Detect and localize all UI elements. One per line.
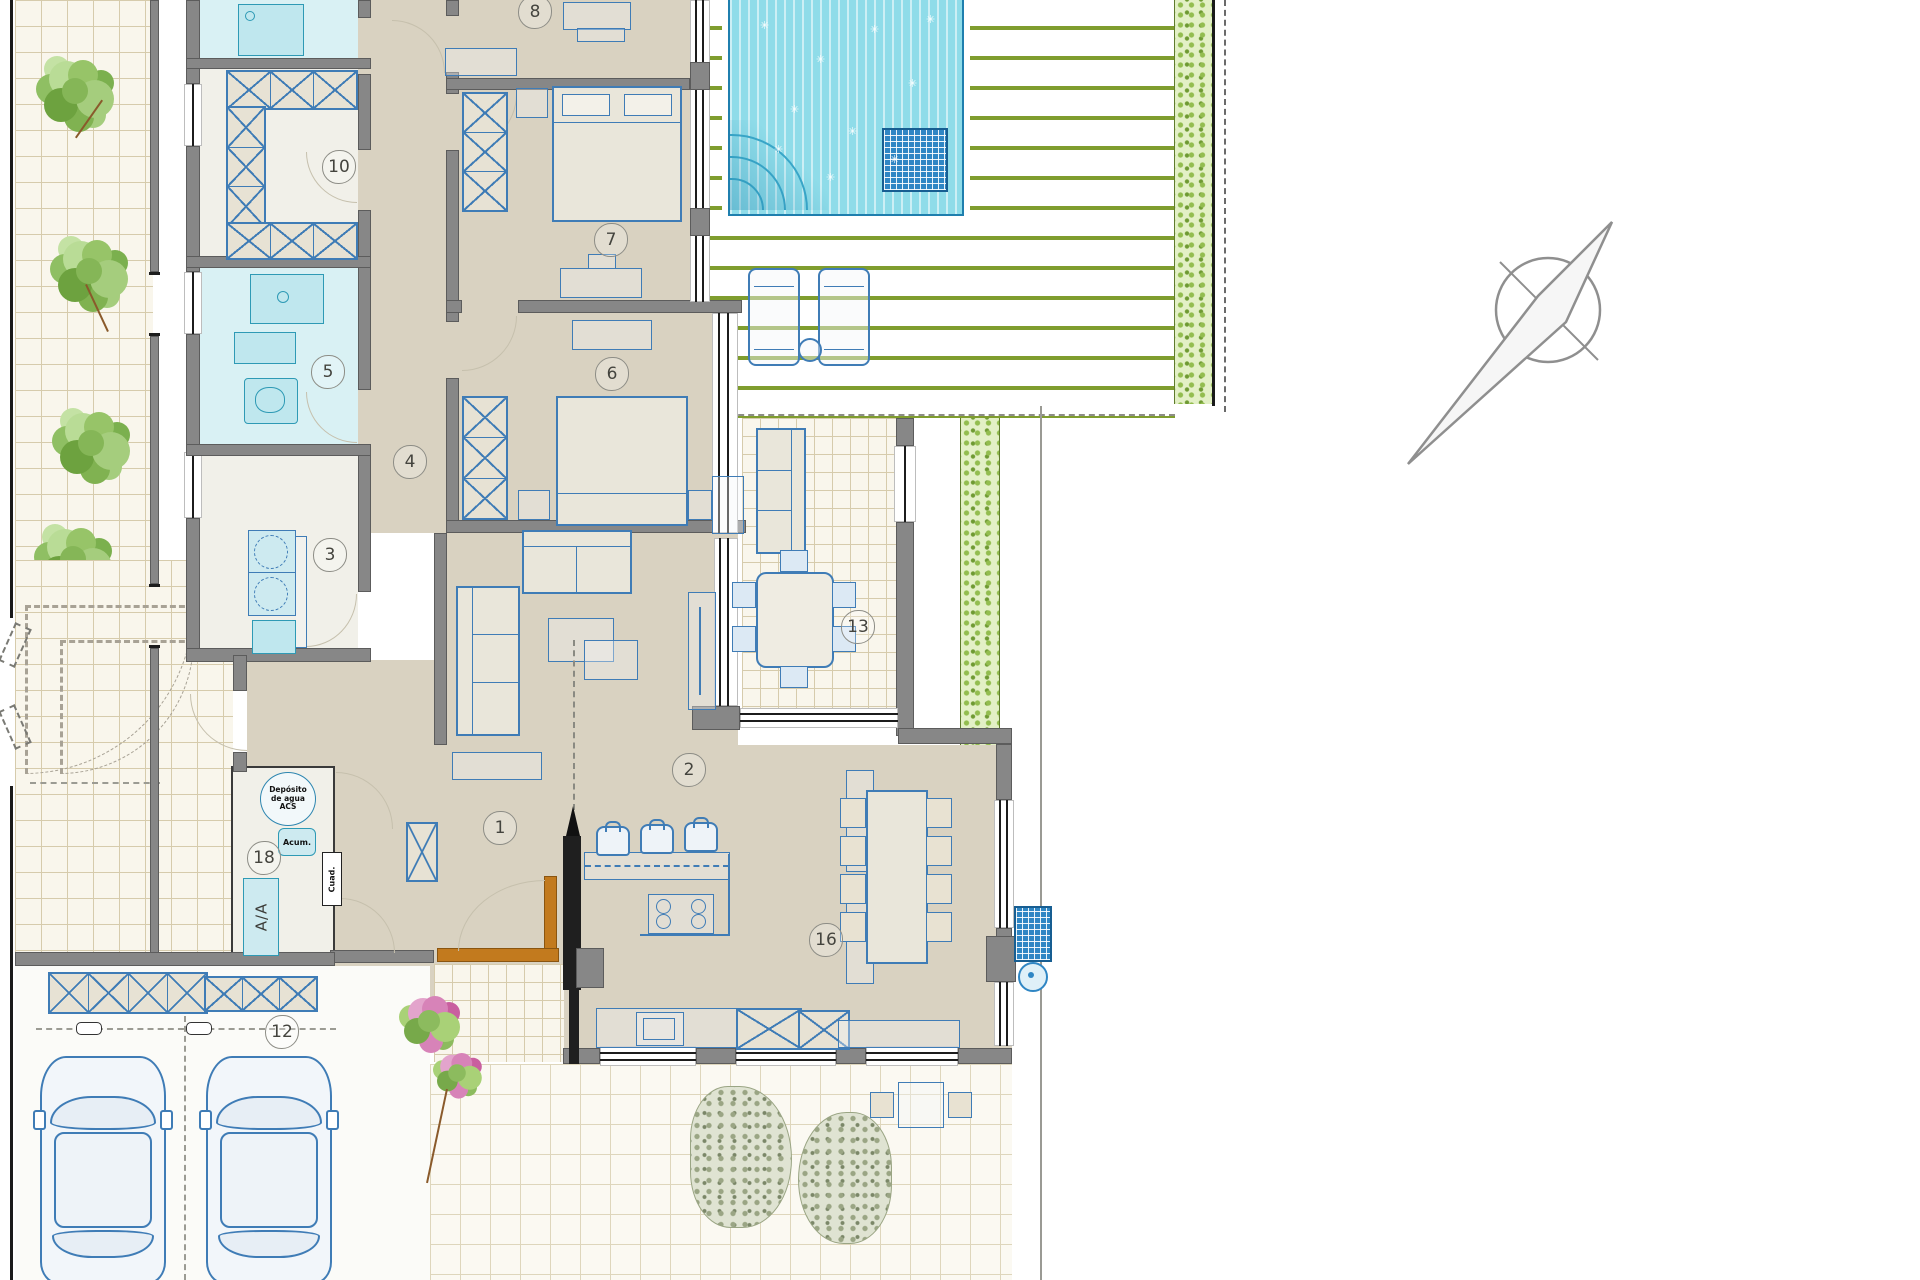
water-sparkle-icon <box>926 14 935 25</box>
water-sparkle-icon <box>890 154 899 165</box>
electrical-panel-label: Cuad. <box>328 866 337 892</box>
wall <box>446 378 459 533</box>
pebble-patch <box>798 1112 892 1244</box>
boundary-line <box>10 786 13 1280</box>
wall <box>446 300 462 313</box>
dining-chair <box>840 836 866 866</box>
hedge-strip <box>1174 0 1214 404</box>
parking-bay-divider <box>184 1016 186 1280</box>
boundary-line <box>1040 406 1042 1280</box>
sideboard <box>838 1020 960 1048</box>
shower-tray <box>238 4 304 56</box>
console-shelf <box>452 752 542 780</box>
pillar <box>576 948 604 988</box>
wardrobe <box>226 106 266 228</box>
wall <box>186 146 200 272</box>
outdoor-chair <box>732 582 756 608</box>
bay-marker <box>76 1022 102 1035</box>
ac-unit: A/A <box>243 878 279 956</box>
fence-wall <box>150 0 159 272</box>
window <box>994 982 1014 1046</box>
sofa <box>522 530 632 594</box>
wall <box>186 334 200 452</box>
washing-machine <box>248 530 296 574</box>
dresser <box>445 48 517 76</box>
wardrobe <box>462 92 508 212</box>
shower-tray <box>250 274 324 324</box>
outdoor-dining-table <box>756 572 834 668</box>
sun-lounger <box>748 268 800 366</box>
counter-edge <box>640 934 730 936</box>
wall <box>958 1048 1012 1064</box>
outdoor-chair <box>832 582 856 608</box>
side-table <box>798 338 822 362</box>
toilet <box>244 378 298 424</box>
dining-chair <box>926 874 952 904</box>
north-arrow-icon <box>1380 170 1680 490</box>
wardrobe <box>462 396 508 520</box>
sliding-glass-doors <box>740 708 898 728</box>
water-sparkle-icon <box>774 144 783 155</box>
outdoor-sofa <box>756 428 806 554</box>
outdoor-chair <box>732 626 756 652</box>
pillar <box>986 936 1016 982</box>
wardrobe <box>226 70 358 110</box>
car <box>40 1056 166 1280</box>
room-label-4: 4 <box>393 445 427 479</box>
room-label-1: 1 <box>483 811 517 845</box>
gate-frame <box>149 645 160 648</box>
wall <box>696 1048 736 1064</box>
dining-table <box>866 790 928 964</box>
desk-chair <box>577 28 625 42</box>
flower-bush-icon <box>418 1010 440 1032</box>
water-sparkle-icon <box>826 172 835 183</box>
room-label-2: 2 <box>672 753 706 787</box>
garage-storage <box>48 972 208 1014</box>
window <box>184 272 202 334</box>
counter-edge <box>728 854 730 936</box>
flower-bush-icon <box>448 1064 466 1082</box>
dining-chair <box>840 874 866 904</box>
accumulator-unit: Acum. <box>278 828 316 856</box>
water-sparkle-icon <box>760 20 769 31</box>
wall <box>358 74 371 150</box>
room-label-6: 6 <box>595 357 629 391</box>
gate-frame <box>149 584 160 587</box>
fence-wall <box>150 648 159 954</box>
bistro-chair <box>948 1092 972 1118</box>
wall <box>896 522 914 736</box>
wall <box>996 744 1012 800</box>
outdoor-chair <box>780 666 808 688</box>
wall <box>233 655 247 691</box>
kitchen-cabinet <box>736 1008 802 1050</box>
water-sparkle-icon <box>790 104 799 115</box>
wall <box>896 418 914 446</box>
counter <box>296 536 307 648</box>
room-label-18: 18 <box>247 841 281 875</box>
bed <box>556 396 688 526</box>
wall <box>690 62 710 90</box>
section-line <box>573 640 575 810</box>
sofa <box>456 586 520 736</box>
setback-dashdot-line <box>1224 0 1226 412</box>
gate-frame <box>149 333 160 336</box>
section-arrow-icon <box>566 806 580 836</box>
dining-chair <box>926 798 952 828</box>
bistro-table <box>898 1082 944 1128</box>
room-label-16: 16 <box>809 923 843 957</box>
window <box>184 452 202 518</box>
kitchen-sink <box>636 1012 684 1046</box>
hall-closet <box>406 822 438 882</box>
cooktop <box>648 894 714 934</box>
coffee-table <box>584 640 638 680</box>
wall <box>898 728 1012 744</box>
wall <box>434 533 447 745</box>
window <box>894 446 916 522</box>
garage-storage <box>204 976 318 1012</box>
water-sparkle-icon <box>908 78 917 89</box>
room-label-13: 13 <box>841 610 875 644</box>
wall <box>233 752 247 772</box>
desk <box>563 2 631 30</box>
tree-icon <box>78 430 104 456</box>
bar-stool <box>640 824 674 854</box>
wall <box>446 150 459 322</box>
pool-equipment-box <box>1014 906 1052 962</box>
dryer <box>248 572 296 616</box>
window-wall <box>714 538 738 706</box>
nightstand <box>518 490 550 520</box>
water-sparkle-icon <box>870 24 879 35</box>
room-label-3: 3 <box>313 538 347 572</box>
dining-chair <box>926 912 952 942</box>
window <box>600 1046 696 1066</box>
outdoor-chair <box>780 550 808 572</box>
bay-marker <box>186 1022 212 1035</box>
car <box>206 1056 332 1280</box>
water-sparkle-icon <box>816 54 825 65</box>
pebble-patch <box>690 1086 792 1228</box>
gate-frame <box>149 272 160 275</box>
window <box>866 1046 958 1066</box>
water-tank-label: Depósito de agua ACS <box>263 786 313 812</box>
entry-door-jamb <box>544 876 557 952</box>
wall <box>186 444 371 456</box>
bed <box>552 86 682 222</box>
water-sparkle-icon <box>848 126 857 137</box>
window <box>994 800 1014 928</box>
wall <box>186 0 200 84</box>
wall <box>358 0 371 18</box>
wall <box>836 1048 866 1064</box>
water-tank: Depósito de agua ACS <box>260 772 316 826</box>
nightstand <box>688 490 712 520</box>
pool-steps <box>730 120 828 210</box>
dresser <box>572 320 652 350</box>
flue-wall <box>569 990 579 1064</box>
bar-stool <box>684 822 718 852</box>
porch-tiles <box>434 964 564 1062</box>
tree-icon <box>76 258 102 284</box>
wall <box>15 952 335 966</box>
swimming-pool <box>728 0 964 216</box>
wall <box>446 0 459 16</box>
wall <box>186 58 371 69</box>
tree-icon <box>62 78 88 104</box>
outdoor-coffee-table <box>712 476 744 534</box>
tv-sideboard <box>688 592 716 710</box>
wardrobe <box>226 222 358 260</box>
valve-icon <box>1018 962 1048 992</box>
room-label-7: 7 <box>594 223 628 257</box>
room-label-5: 5 <box>311 355 345 389</box>
dining-chair <box>840 798 866 828</box>
vestibule-floor <box>247 658 332 770</box>
fence-wall <box>150 336 159 584</box>
room-label-10: 10 <box>322 150 356 184</box>
dining-chair <box>840 912 866 942</box>
floor-plan-canvas: Depósito de agua ACS Acum. A/A Cuad. 123… <box>0 0 1920 1280</box>
boundary-line <box>10 0 13 618</box>
window-wall <box>690 0 710 302</box>
electrical-panel: Cuad. <box>322 852 342 906</box>
dresser <box>560 268 642 298</box>
boundary-line <box>1212 0 1215 406</box>
wall <box>358 210 371 390</box>
wall <box>358 450 371 592</box>
room-label-12: 12 <box>265 1015 299 1049</box>
dining-chair <box>926 836 952 866</box>
wall <box>690 208 710 236</box>
laundry-sink <box>252 620 296 654</box>
bathroom-sink <box>234 332 296 364</box>
ac-unit-label: A/A <box>252 903 270 932</box>
path-dash <box>30 782 160 784</box>
wall <box>186 518 200 662</box>
kitchen-island <box>584 852 730 880</box>
bistro-chair <box>870 1092 894 1118</box>
window <box>184 84 202 146</box>
sun-lounger <box>818 268 870 366</box>
accumulator-label: Acum. <box>283 838 311 847</box>
bar-stool <box>596 826 630 856</box>
nightstand <box>516 88 548 118</box>
